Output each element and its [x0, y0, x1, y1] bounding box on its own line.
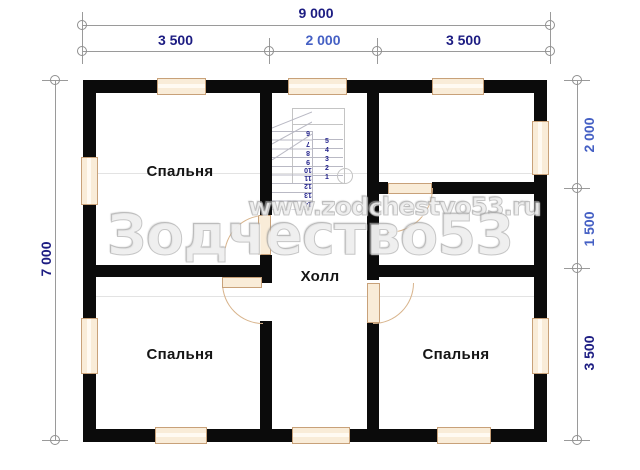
window-top-left — [157, 78, 206, 95]
door-leaf-bedroom-bottom-right — [367, 283, 380, 323]
interior-wall-left-vertical-bottom — [260, 321, 272, 429]
stair-step-number: 7 — [302, 140, 314, 147]
window-top-center — [288, 78, 347, 95]
window-right-upper — [532, 121, 549, 175]
grid-marker-icon — [572, 435, 582, 445]
dimension-line-top-segments — [82, 51, 550, 52]
dim-top-total: 9 000 — [82, 5, 550, 21]
grid-marker-icon — [572, 75, 582, 85]
stair-step-number: 12 — [302, 182, 314, 189]
dimension-line-top-total — [82, 25, 550, 26]
dim-right-bottom: 3 500 — [581, 328, 597, 378]
window-bottom-center — [292, 427, 350, 444]
dim-right-top: 2 000 — [581, 110, 597, 160]
grid-marker-icon — [545, 20, 555, 30]
stair-step-number: 8 — [302, 149, 314, 156]
room-label-bedroom-top-left: Спальня — [110, 163, 250, 180]
floor-plan-canvas: 5 4 3 2 1 6 7 8 9 10 11 12 13 14 Спальня… — [0, 0, 640, 470]
room-label-bedroom-bottom-left: Спальня — [110, 346, 250, 363]
stair-step-number: 1 — [321, 174, 333, 181]
grid-marker-icon — [77, 20, 87, 30]
dim-top-mid: 2 000 — [269, 32, 377, 48]
window-right-lower — [532, 318, 549, 374]
dim-top-left: 3 500 — [82, 32, 269, 48]
window-top-right — [432, 78, 484, 95]
dimension-line-left — [55, 80, 56, 440]
door-swing-arc-bedroom-bottom-left — [222, 283, 263, 324]
window-bottom-left — [155, 427, 207, 444]
dim-top-right: 3 500 — [377, 32, 550, 48]
window-left-upper — [81, 157, 98, 205]
interior-wall-right-vertical-top — [367, 93, 379, 182]
grid-marker-icon — [572, 263, 582, 273]
stair-step-number: 11 — [302, 174, 314, 181]
stair-step-number: 4 — [321, 147, 333, 154]
stair-step-number: 9 — [302, 158, 314, 165]
room-label-bedroom-bottom-right: Спальня — [386, 346, 526, 363]
window-bottom-right — [437, 427, 491, 444]
stair-step-number: 5 — [321, 138, 333, 145]
stair-step-number: 10 — [302, 166, 314, 173]
stair-step-number: 3 — [321, 156, 333, 163]
door-leaf-bedroom-bottom-left — [222, 277, 262, 288]
dim-left-total: 7 000 — [38, 234, 54, 284]
dimension-line-right — [577, 80, 578, 440]
dim-right-mid: 1 500 — [581, 204, 597, 254]
window-left-lower — [81, 318, 98, 374]
interior-wall-right-vertical-bottom — [367, 322, 379, 429]
watermark-brand: Зодчество53 — [90, 203, 530, 268]
reference-line-lower — [96, 296, 534, 297]
grid-marker-icon — [50, 435, 60, 445]
stair-step-number: 2 — [321, 165, 333, 172]
grid-marker-icon — [572, 183, 582, 193]
stair-step-number: 6 — [302, 129, 314, 136]
grid-marker-icon — [50, 75, 60, 85]
stair-column-marker-icon — [337, 168, 353, 184]
